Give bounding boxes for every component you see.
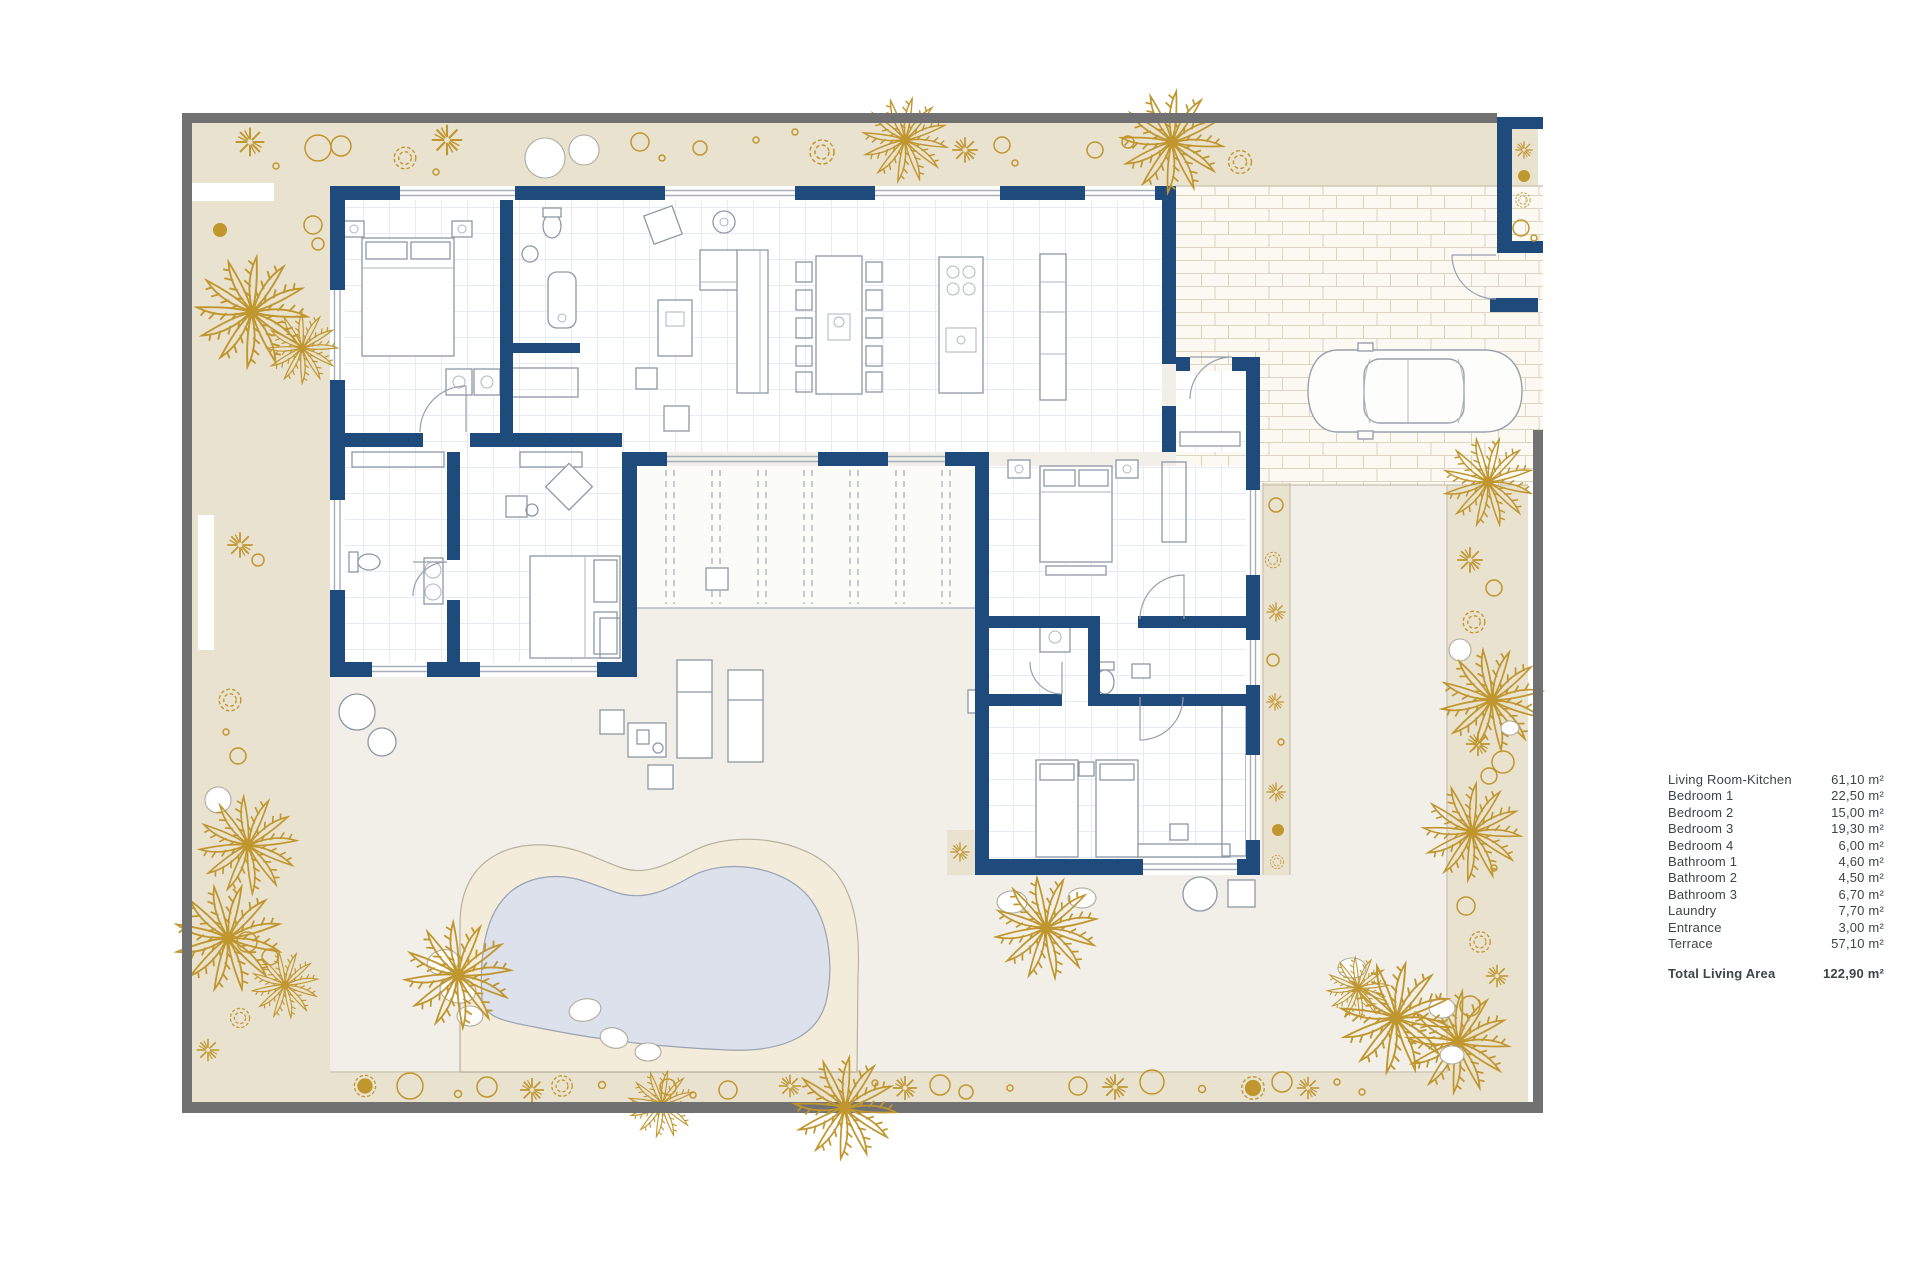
legend-row-label: Laundry xyxy=(1668,903,1716,919)
legend-row-label: Bathroom 1 xyxy=(1668,854,1737,870)
legend-row-value: 19,30 m² xyxy=(1831,821,1884,837)
car-icon xyxy=(1308,343,1522,439)
legend-row-label: Entrance xyxy=(1668,920,1722,936)
legend-row-value: 4,50 m² xyxy=(1839,870,1884,886)
legend-row: Bathroom 14,60 m² xyxy=(1668,854,1884,870)
legend-row-label: Bedroom 1 xyxy=(1668,788,1733,804)
legend-row-label: Bedroom 4 xyxy=(1668,838,1733,854)
legend-row-value: 6,70 m² xyxy=(1839,887,1884,903)
legend-row-value: 6,00 m² xyxy=(1839,838,1884,854)
legend-row-label: Terrace xyxy=(1668,936,1713,952)
side-garden-strip xyxy=(1263,483,1290,875)
legend-row: Living Room-Kitchen61,10 m² xyxy=(1668,772,1884,788)
legend-row-label: Bedroom 2 xyxy=(1668,805,1733,821)
legend-row-label: Bedroom 3 xyxy=(1668,821,1733,837)
legend-row-value: 57,10 m² xyxy=(1831,936,1884,952)
area-legend: Living Room-Kitchen61,10 m²Bedroom 122,5… xyxy=(1668,772,1884,983)
legend-row: Bathroom 24,50 m² xyxy=(1668,870,1884,886)
legend-rows: Living Room-Kitchen61,10 m²Bedroom 122,5… xyxy=(1668,772,1884,952)
legend-row: Bedroom 46,00 m² xyxy=(1668,838,1884,854)
legend-row: Bathroom 36,70 m² xyxy=(1668,887,1884,903)
legend-row: Laundry7,70 m² xyxy=(1668,903,1884,919)
legend-row-value: 15,00 m² xyxy=(1831,805,1884,821)
deck xyxy=(637,466,975,608)
legend-row: Entrance3,00 m² xyxy=(1668,920,1884,936)
legend-total: Total Living Area 122,90 m² xyxy=(1668,966,1884,982)
legend-row-value: 7,70 m² xyxy=(1839,903,1884,919)
legend-row: Bedroom 319,30 m² xyxy=(1668,821,1884,837)
legend-total-label: Total Living Area xyxy=(1668,966,1775,982)
legend-row-value: 22,50 m² xyxy=(1831,788,1884,804)
floor-plan-canvas: Living Room-Kitchen61,10 m²Bedroom 122,5… xyxy=(0,0,1920,1280)
legend-row-value: 4,60 m² xyxy=(1839,854,1884,870)
legend-total-value: 122,90 m² xyxy=(1823,966,1884,982)
floor-plan-drawing xyxy=(0,0,1920,1280)
legend-row-value: 3,00 m² xyxy=(1839,920,1884,936)
legend-row-label: Bathroom 2 xyxy=(1668,870,1737,886)
legend-row-value: 61,10 m² xyxy=(1831,772,1884,788)
legend-row-label: Living Room-Kitchen xyxy=(1668,772,1792,788)
legend-row: Terrace57,10 m² xyxy=(1668,936,1884,952)
legend-row: Bedroom 122,50 m² xyxy=(1668,788,1884,804)
legend-row: Bedroom 215,00 m² xyxy=(1668,805,1884,821)
legend-row-label: Bathroom 3 xyxy=(1668,887,1737,903)
